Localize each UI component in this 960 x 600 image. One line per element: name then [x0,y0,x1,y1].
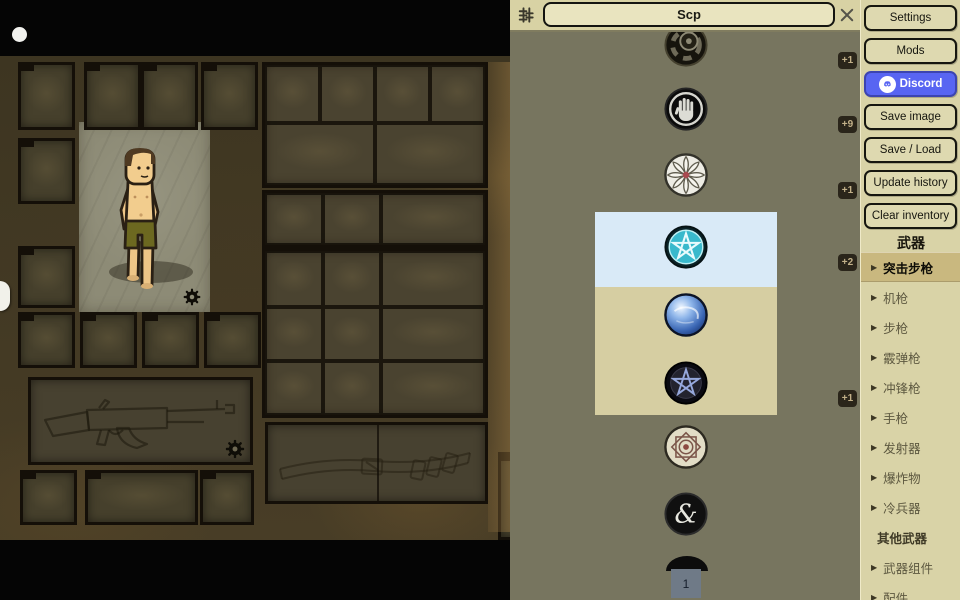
status-dot [12,27,27,42]
chevron-right-icon: ▶ [871,293,877,302]
holster-slot[interactable] [204,312,261,368]
holster-slot[interactable] [80,312,137,368]
chevron-right-icon: ▶ [871,443,877,452]
ampersand-emblem-icon[interactable]: & [663,491,709,537]
button-label: Mods [896,45,924,57]
equip-slot[interactable] [141,62,198,130]
storage-cell[interactable] [265,123,375,185]
search-input[interactable] [543,2,835,27]
search-bar [510,0,860,32]
button-label: Save / Load [880,144,941,156]
equip-slot[interactable] [201,62,258,130]
page-indicator[interactable]: 1 [671,569,701,598]
storage-cell[interactable] [320,65,375,123]
count-badge: +1 [838,390,857,407]
category-武器组件[interactable]: ▶武器组件 [861,552,960,582]
cyan-pentagram-emblem-icon[interactable] [663,224,709,270]
holster-slot[interactable] [142,312,199,368]
button-label: Discord [900,78,943,90]
storage-cell[interactable] [323,193,381,245]
attachment-slot[interactable] [85,470,198,525]
category-label: 爆炸物 [883,468,921,487]
category-label: 步枪 [883,318,908,337]
storage-cell[interactable] [430,65,485,123]
side-drawer-handle[interactable] [0,281,10,311]
equip-slot[interactable] [18,246,75,308]
stop-hand-emblem-icon[interactable] [663,86,709,132]
category-配件[interactable]: ▶配件 [861,582,960,600]
gear-icon[interactable] [182,287,202,307]
game-viewport [0,0,510,600]
category-label: 发射器 [883,438,921,457]
storage-box[interactable] [262,62,488,188]
inventory-scene [0,56,510,540]
gear-icon[interactable] [224,438,246,460]
weapons-section-header: 武器 [861,233,960,253]
storage-cell[interactable] [323,361,381,415]
equip-slot[interactable] [18,62,75,130]
sidebar: SettingsModsDiscordSave imageSave / Load… [860,0,960,600]
chevron-right-icon: ▶ [871,353,877,362]
belt-slot[interactable] [265,422,488,504]
storage-box[interactable] [262,190,488,248]
storage-cell[interactable] [265,193,323,245]
belt-slot-divider [377,425,379,501]
chevron-right-icon: ▶ [871,413,877,422]
category-手枪[interactable]: ▶手枪 [861,402,960,432]
equip-slot[interactable] [18,138,75,204]
settings-button[interactable]: Settings [864,5,957,31]
save-image-button[interactable]: Save image [864,104,957,130]
equip-slot[interactable] [84,62,141,130]
chevron-right-icon: ▶ [871,503,877,512]
storage-cell[interactable] [265,361,323,415]
category-label: 冲锋枪 [883,378,921,397]
button-label: Settings [890,12,932,24]
category-霰弹枪[interactable]: ▶霰弹枪 [861,342,960,372]
count-badge: +2 [838,254,857,271]
holster-slot[interactable] [18,312,75,368]
storage-cell[interactable] [375,123,485,185]
count-badge: +1 [838,52,857,69]
storage-cell[interactable] [375,65,430,123]
category-发射器[interactable]: ▶发射器 [861,432,960,462]
chevron-right-icon: ▶ [871,323,877,332]
chevron-right-icon: ▶ [871,383,877,392]
chevron-right-icon: ▶ [871,263,877,272]
storage-cell[interactable] [381,307,485,361]
attachment-slot[interactable] [200,470,254,525]
count-badge: +1 [838,182,857,199]
category-label: 机枪 [883,288,908,307]
chevron-right-icon: ▶ [871,593,877,600]
storage-cell[interactable] [323,251,381,307]
storage-cell[interactable] [323,307,381,361]
rifle-sketch [31,380,250,462]
category-label: 配件 [883,588,908,600]
category-label: 霰弹枪 [883,348,921,367]
character-panel[interactable] [79,122,210,312]
category-冲锋枪[interactable]: ▶冲锋枪 [861,372,960,402]
filter-icon[interactable] [514,3,538,27]
category-突击步枪[interactable]: ▶突击步枪 [861,252,960,282]
storage-cell[interactable] [265,65,320,123]
attachment-slot[interactable] [20,470,77,525]
item-browser-panel: +1+9+1+2+1& 1 [510,0,860,600]
storage-cell[interactable] [265,251,323,307]
clear-inventory-button[interactable]: Clear inventory [864,203,957,229]
chevron-right-icon: ▶ [871,563,877,572]
category-机枪[interactable]: ▶机枪 [861,282,960,312]
category-其他武器[interactable]: 其他武器 [861,522,960,552]
category-label: 武器组件 [883,558,933,577]
pinwheel-rose-emblem-icon[interactable] [663,152,709,198]
discord-logo-icon [879,76,896,93]
save-load-button[interactable]: Save / Load [864,137,957,163]
button-label: Save image [880,111,941,123]
survivor-character [79,122,210,312]
storage-cell[interactable] [381,361,485,415]
chevron-right-icon: ▶ [871,473,877,482]
button-label: Update history [873,177,947,189]
blue-orb-emblem-icon[interactable] [663,292,709,338]
storage-box[interactable] [262,248,488,418]
category-label: 其他武器 [877,528,927,547]
category-label: 手枪 [883,408,908,427]
category-label: 突击步枪 [883,258,933,277]
discord-button[interactable]: Discord [864,71,957,97]
storage-cell[interactable] [265,307,323,361]
mods-button[interactable]: Mods [864,38,957,64]
gear-rose-emblem-icon[interactable] [663,424,709,470]
button-label: Clear inventory [872,210,949,222]
category-步枪[interactable]: ▶步枪 [861,312,960,342]
update-history-button[interactable]: Update history [864,170,957,196]
dark-pentagram-emblem-icon[interactable] [663,360,709,406]
rifle-slot[interactable] [28,377,253,465]
storage-cell[interactable] [381,193,485,245]
category-冷兵器[interactable]: ▶冷兵器 [861,492,960,522]
category-爆炸物[interactable]: ▶爆炸物 [861,462,960,492]
scene-edge [488,62,510,532]
category-label: 冷兵器 [883,498,921,517]
storage-cell[interactable] [381,251,485,307]
svg-text:&: & [674,500,697,530]
close-icon[interactable] [836,3,858,27]
count-badge: +9 [838,116,857,133]
